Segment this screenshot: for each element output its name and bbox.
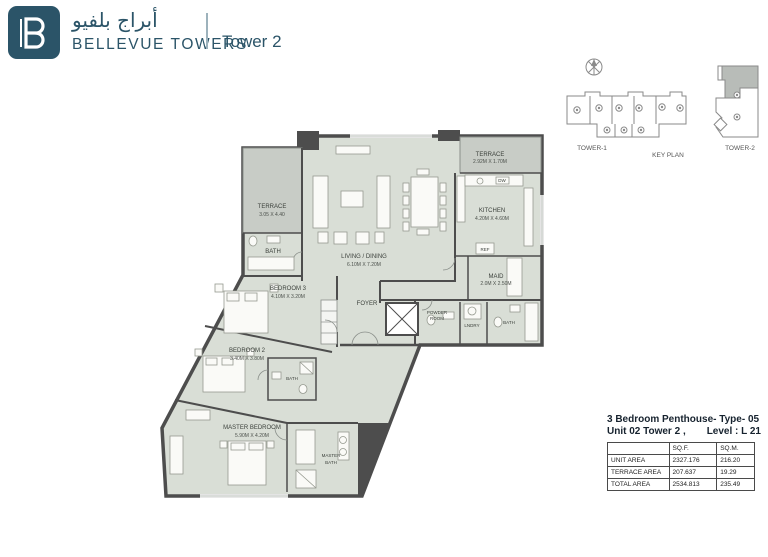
living-dims: 6.10M X 7.20M (347, 262, 381, 268)
area-table: SQ.F. SQ.M. UNIT AREA 2327.176 216.20 TE… (607, 442, 755, 491)
bath-mid-label: BATH (286, 376, 298, 381)
bedroom3-label: BEDROOM 3 (270, 286, 307, 292)
bedroom2-dims: 3.40M X 3.80M (230, 356, 264, 362)
row-sqm: 19.29 (717, 467, 755, 479)
terrace-left-label: TERRACE (258, 204, 287, 210)
master-bath-label-2: BATH (325, 460, 337, 465)
foyer-label: FOYER (357, 301, 378, 307)
floor-plan-page: أبراج بلفيو BELLEVUE TOWERS Tower 2 (0, 0, 768, 557)
row-sqf: 2534.813 (669, 479, 717, 491)
maid-furniture (507, 258, 522, 296)
header-sqm: SQ.M. (717, 443, 755, 455)
terrace-top-dims: 2.92M X 1.70M (473, 159, 507, 165)
master-bedroom-label: MASTER BEDROOM (223, 425, 281, 431)
row-label: TERRACE AREA (608, 467, 670, 479)
terrace-left (243, 148, 302, 233)
ref-label: REF (481, 247, 490, 252)
key-plan-title: KEY PLAN (652, 152, 684, 159)
unit-level: Level : L 21 (707, 426, 761, 437)
bedroom2-label: BEDROOM 2 (229, 348, 266, 354)
tower2-label: TOWER-2 (725, 145, 755, 152)
tower1-label: TOWER-1 (577, 145, 607, 152)
dw-label: DW (498, 178, 506, 183)
bedroom3-dims: 4.10M X 3.20M (271, 294, 305, 300)
table-row: TERRACE AREA 207.637 19.29 (608, 467, 755, 479)
terrace-left-dims: 3.05 X 4.40 (259, 212, 285, 218)
powder-room-label-1: POWDER (427, 310, 448, 315)
unit-info-block: 3 Bedroom Penthouse- Type- 05 Unit 02 To… (607, 414, 761, 491)
header-sqf: SQ.F. (669, 443, 717, 455)
maid-label: MAID (489, 274, 505, 280)
living-label: LIVING / DINING (341, 254, 387, 260)
row-sqm: 216.20 (717, 455, 755, 467)
terrace-top-label: TERRACE (476, 152, 505, 158)
unit-title: 3 Bedroom Penthouse- Type- 05 (607, 414, 761, 425)
row-sqm: 235.49 (717, 479, 755, 491)
row-sqf: 207.637 (669, 467, 717, 479)
area-table-header-row: SQ.F. SQ.M. (608, 443, 755, 455)
laundry-label: LNDRY (464, 323, 479, 328)
row-sqf: 2327.176 (669, 455, 717, 467)
table-row: TOTAL AREA 2534.813 235.49 (608, 479, 755, 491)
elevator-shaft (386, 303, 418, 335)
bath-upper-label: BATH (265, 249, 281, 255)
table-row: UNIT AREA 2327.176 216.20 (608, 455, 755, 467)
maid-dims: 2.0M X 2.50M (480, 281, 511, 287)
row-label: UNIT AREA (608, 455, 670, 467)
compass-icon (586, 59, 602, 75)
unit-subtitle: Unit 02 Tower 2 , (607, 426, 686, 437)
tower2-footprint (714, 66, 758, 137)
header-blank (608, 443, 670, 455)
master-bedroom-dims: 5.90M X 4.20M (235, 433, 269, 439)
kitchen-label: KITCHEN (479, 208, 505, 214)
row-label: TOTAL AREA (608, 479, 670, 491)
master-bath-label-1: MASTER (322, 453, 342, 458)
tower1-footprint (567, 92, 686, 137)
powder-room-label-2: ROOM (430, 316, 444, 321)
key-plan: TOWER-1 TOWER-2 KEY PLAN (567, 59, 758, 159)
kitchen-dims: 4.20M X 4.60M (475, 216, 509, 222)
bath-service-label: BATH (503, 320, 515, 325)
closet (321, 300, 337, 344)
